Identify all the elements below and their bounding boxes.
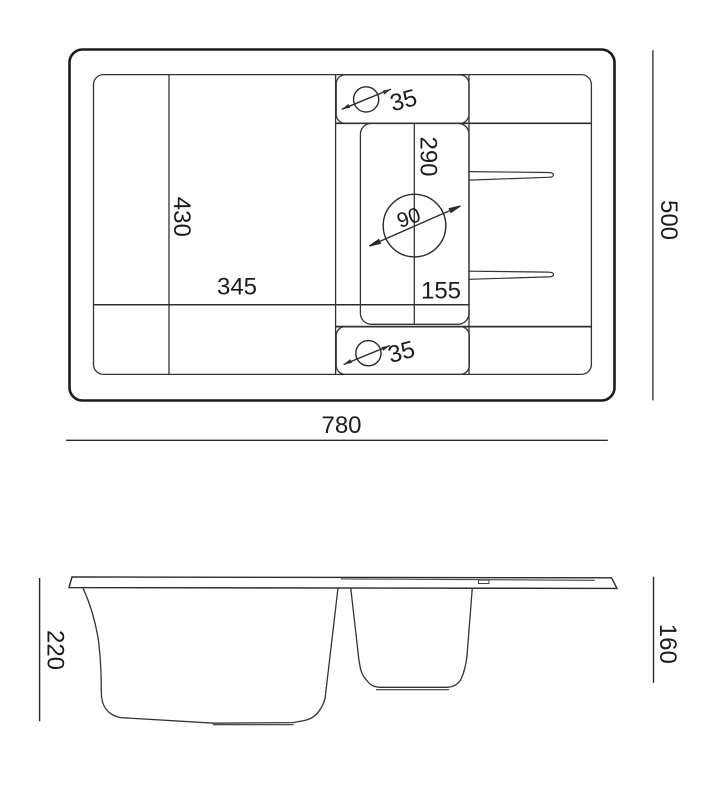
svg-text:290: 290	[415, 136, 442, 176]
svg-text:155: 155	[421, 278, 461, 305]
svg-text:780: 780	[321, 412, 361, 439]
svg-text:345: 345	[217, 274, 257, 301]
svg-text:160: 160	[654, 624, 681, 664]
svg-text:430: 430	[168, 197, 195, 237]
svg-text:220: 220	[42, 630, 69, 670]
svg-text:500: 500	[655, 200, 682, 240]
